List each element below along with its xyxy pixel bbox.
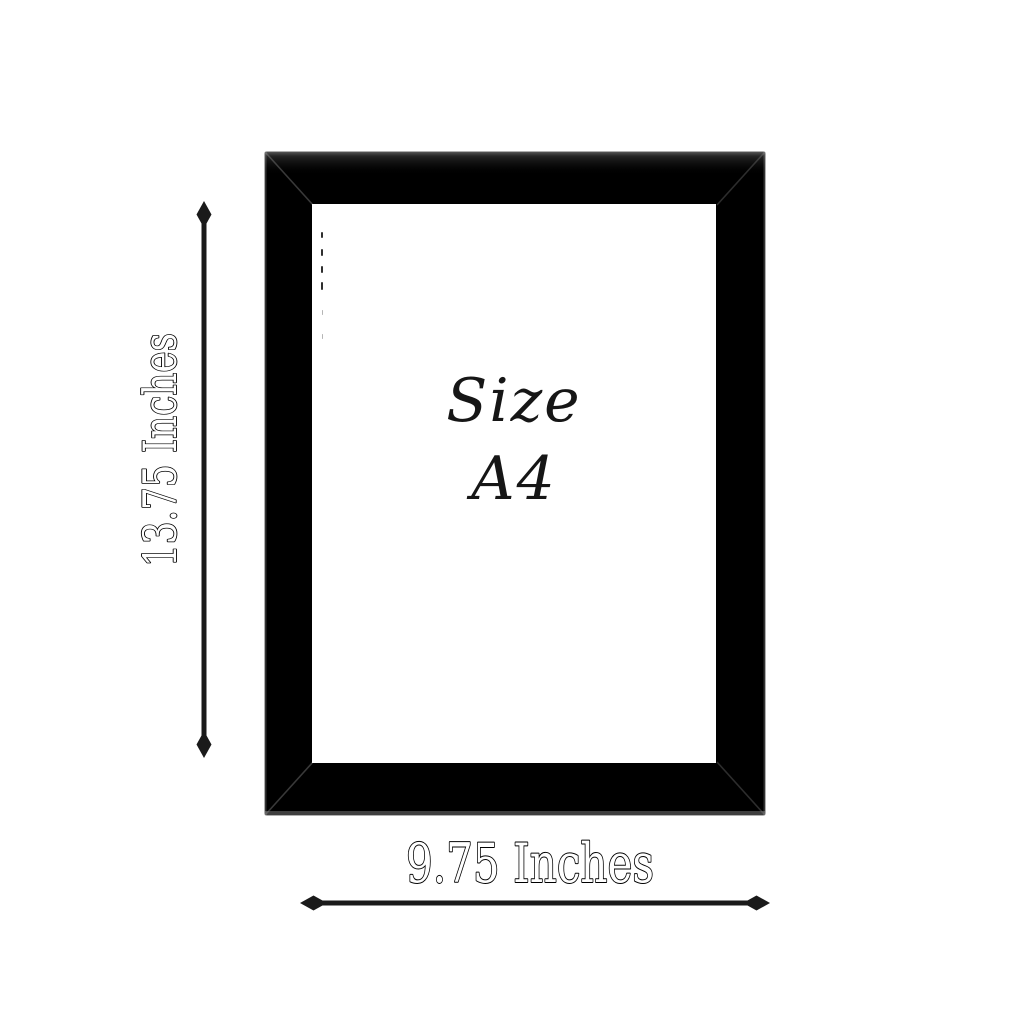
width-dimension-label: 9.75 Inches: [406, 832, 654, 895]
mitre-line-bottom-right: [717, 762, 764, 814]
height-arrowhead-bottom: [197, 731, 212, 758]
mitre-line-top-left: [266, 153, 313, 205]
frame-window: Size A4: [312, 204, 716, 763]
height-dimension-label: 13.75 Inches: [133, 333, 187, 567]
size-label-value: A4: [312, 440, 716, 518]
frame-top-sheen: [265, 152, 765, 204]
photo-artifact: [321, 266, 323, 273]
frame-bottom-edge-highlight: [265, 811, 765, 815]
height-arrowhead-top: [197, 201, 212, 228]
photo-artifact: [321, 249, 323, 256]
width-arrowhead-left: [300, 896, 327, 911]
product-dimension-diagram: Size A4 13.75 Inches 9.75 Inches: [0, 0, 1024, 1024]
photo-artifact: [322, 334, 323, 339]
frame-right-edge-highlight: [764, 152, 766, 815]
frame-left-edge-highlight: [265, 152, 267, 815]
size-label-word: Size: [312, 362, 716, 440]
photo-artifact: [322, 310, 323, 315]
frame-size-label: Size A4: [312, 362, 716, 518]
height-dimension: 13.75 Inches: [133, 201, 212, 758]
mitre-line-bottom-left: [266, 762, 313, 814]
photo-artifact: [321, 232, 323, 238]
photo-artifact: [321, 282, 323, 290]
width-arrowhead-right: [743, 896, 770, 911]
picture-frame: Size A4: [265, 152, 765, 815]
width-dimension: 9.75 Inches: [300, 832, 770, 911]
mitre-line-top-right: [717, 153, 764, 205]
